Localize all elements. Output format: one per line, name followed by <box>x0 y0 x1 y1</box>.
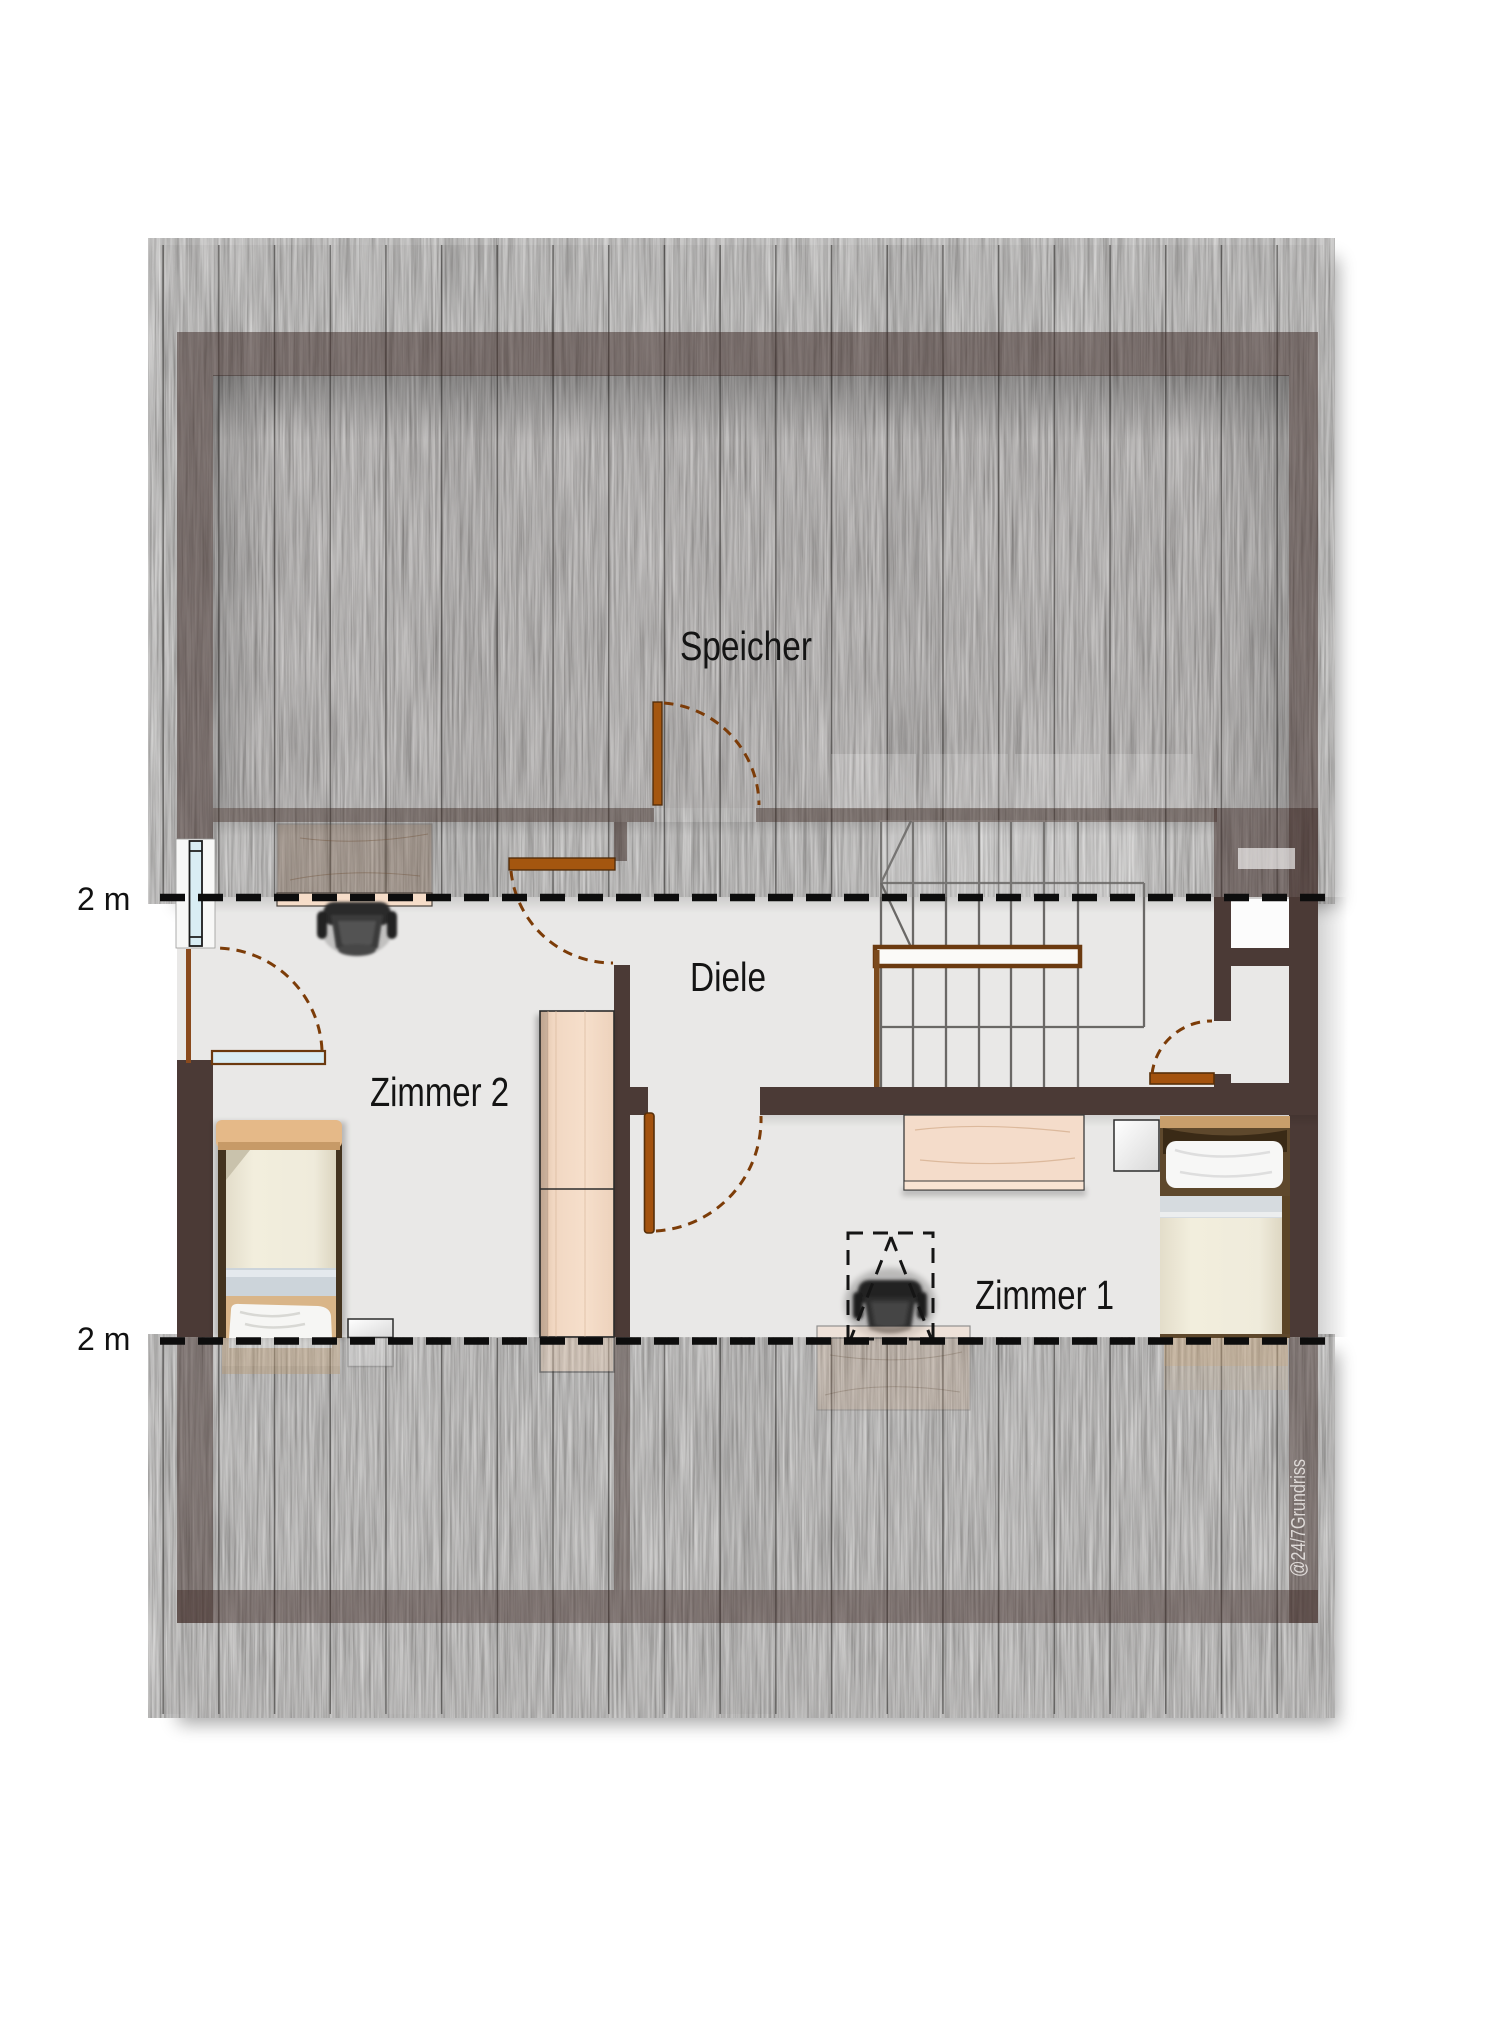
svg-text:Diele: Diele <box>690 954 766 1000</box>
svg-text:Zimmer 1: Zimmer 1 <box>975 1272 1114 1318</box>
svg-text:@24/7Grundriss: @24/7Grundriss <box>1288 1459 1310 1577</box>
svg-text:Zimmer 2: Zimmer 2 <box>370 1069 509 1115</box>
svg-text:2 m: 2 m <box>77 1321 130 1357</box>
svg-text:2 m: 2 m <box>77 881 130 917</box>
svg-text:Speicher: Speicher <box>680 623 812 669</box>
